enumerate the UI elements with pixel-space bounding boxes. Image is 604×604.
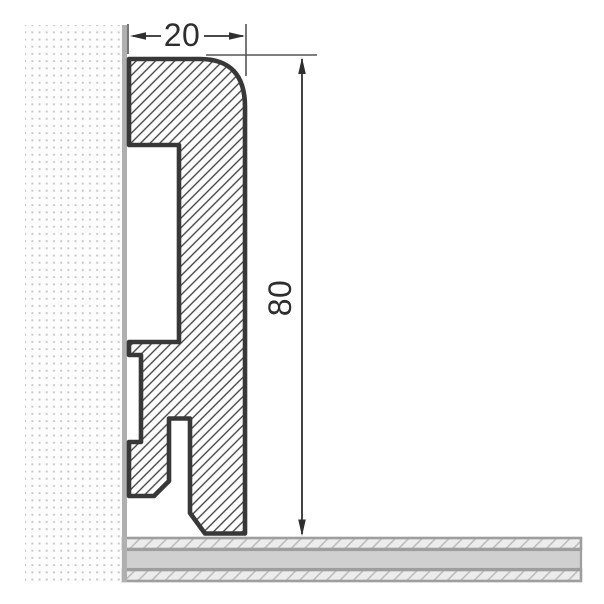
height-dimension-label: 80 [262,280,298,317]
drawing-svg: 20 80 [0,0,604,604]
arrow-left-icon [130,32,146,40]
floor-bottom-layer [123,570,581,581]
arrow-down-icon [298,520,306,537]
floor-core-layer [123,550,581,569]
skirting-profile [129,59,245,534]
width-dimension: 20 [130,17,245,53]
height-dimension: 80 [262,58,306,537]
wall-section [25,25,122,582]
arrow-up-icon [298,58,306,75]
floor-section [123,538,581,581]
floor-top-layer [123,538,581,549]
arrow-right-icon [229,32,245,40]
technical-drawing: 20 80 [0,0,604,604]
wall-surface-line [122,25,127,582]
width-dimension-label: 20 [164,17,201,53]
